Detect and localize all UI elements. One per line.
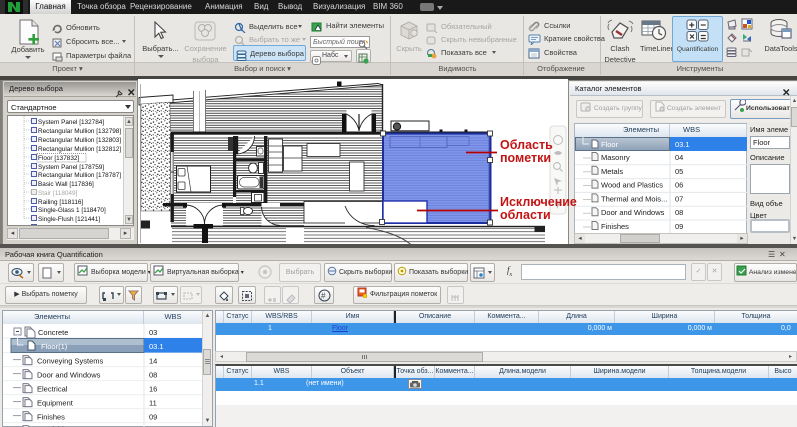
svg-text:03.1: 03.1	[675, 140, 690, 149]
svg-text:03: 03	[149, 328, 157, 337]
svg-text:Rectangular Mullion [178787]: Rectangular Mullion [178787]	[38, 172, 121, 179]
svg-text:System Panel [132784]: System Panel [132784]	[38, 119, 104, 126]
svg-text:Conveying Systems: Conveying Systems	[37, 357, 104, 366]
svg-text:Basic Wall [117836]: Basic Wall [117836]	[38, 181, 94, 188]
svg-text:11: 11	[149, 399, 157, 408]
svg-text:Floor: Floor	[601, 140, 619, 149]
svg-text:16: 16	[149, 385, 157, 394]
svg-text:Thermal and Mois...: Thermal and Mois...	[601, 194, 667, 203]
svg-text:Railing [118116]: Railing [118116]	[38, 199, 83, 206]
svg-text:Door and Windows: Door and Windows	[37, 371, 101, 380]
svg-text:Floor [137832]: Floor [137832]	[38, 155, 79, 162]
svg-text:System Panel [178759]: System Panel [178759]	[38, 164, 104, 171]
svg-text:Finishes: Finishes	[37, 413, 65, 422]
svg-text:Equipment: Equipment	[37, 399, 74, 408]
svg-text:Rectangular Mullion [132803]: Rectangular Mullion [132803]	[38, 137, 121, 144]
svg-text:Single-Flush [121441]: Single-Flush [121441]	[38, 216, 100, 223]
svg-text:Rectangular Mullion [132798]: Rectangular Mullion [132798]	[38, 128, 121, 135]
svg-text:03.1: 03.1	[149, 342, 164, 351]
svg-text:Finishes: Finishes	[601, 222, 629, 231]
svg-text:14: 14	[149, 357, 157, 366]
svg-text:05: 05	[675, 167, 683, 176]
svg-text:09: 09	[149, 413, 157, 422]
svg-text:#: #	[321, 292, 326, 301]
svg-text:Concrete: Concrete	[38, 328, 68, 337]
svg-text:Wood and Plastics: Wood and Plastics	[601, 181, 663, 190]
svg-text:Rectangular Mullion [132812]: Rectangular Mullion [132812]	[38, 146, 121, 153]
svg-text:07: 07	[675, 194, 683, 203]
svg-text:Metals: Metals	[601, 167, 623, 176]
svg-text:Masonry: Masonry	[601, 153, 630, 162]
svg-text:08: 08	[149, 371, 157, 380]
svg-text:Door and Windows: Door and Windows	[601, 208, 665, 217]
svg-text:Single-Glass 1 [118470]: Single-Glass 1 [118470]	[38, 207, 106, 214]
svg-text:Stair [118049]: Stair [118049]	[38, 190, 78, 197]
svg-text:04: 04	[675, 153, 683, 162]
svg-text:08: 08	[675, 208, 683, 217]
svg-text:Floor(1): Floor(1)	[41, 342, 68, 351]
svg-text:09: 09	[675, 222, 683, 231]
svg-text:06: 06	[675, 181, 683, 190]
svg-text:Electrical: Electrical	[37, 385, 68, 394]
